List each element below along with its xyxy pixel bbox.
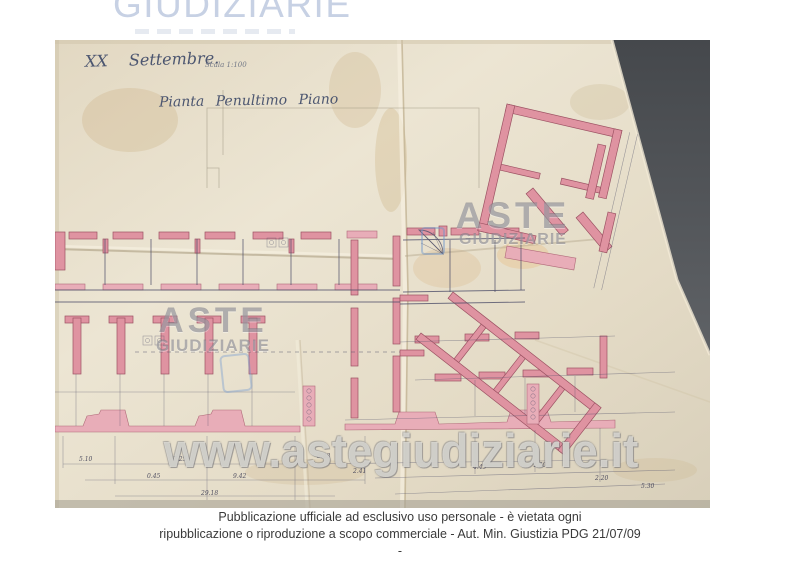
- page: GIUDIZIARIE: [0, 0, 800, 566]
- watermark-url: www.astegiudiziarie.it: [159, 423, 644, 478]
- caption-line-1: Pubblicazione ufficiale ad esclusivo uso…: [0, 509, 800, 526]
- floorplan-photo[interactable]: 5.107.255.480.459.4229.182.414.451.302.2…: [55, 40, 710, 508]
- watermark-giudiziarie-text: GIUDIZIARIE: [447, 231, 579, 249]
- watermark-aste-text: ASTE: [137, 306, 289, 336]
- svg-text:5.30: 5.30: [641, 483, 655, 490]
- plan-title-handwriting: Pianta Penultimo Piano: [159, 91, 338, 110]
- aste-logo-icon: [219, 353, 253, 394]
- svg-text:5.10: 5.10: [79, 456, 93, 463]
- caption-line-2: ripubblicazione o riproduzione a scopo c…: [0, 526, 800, 543]
- legal-caption: Pubblicazione ufficiale ad esclusivo uso…: [0, 509, 800, 560]
- plan-date-handwriting: XX Settembre.: [85, 48, 220, 71]
- watermark-aste-right: ASTE GIUDIZIARIE: [447, 200, 579, 249]
- aste-logo-icon: [421, 227, 445, 255]
- caption-line-3: -: [0, 543, 800, 560]
- watermark-aste-text: ASTE: [447, 200, 579, 231]
- site-logo-text[interactable]: GIUDIZIARIE: [113, 0, 352, 26]
- site-logo-tagline: [135, 29, 295, 34]
- svg-text:29.18: 29.18: [200, 490, 218, 497]
- watermark-giudiziarie-text: GIUDIZIARIE: [137, 336, 289, 356]
- watermark-aste-left: ASTE GIUDIZIARIE: [137, 306, 289, 356]
- plan-scale-handwriting: Scala 1:100: [205, 61, 247, 69]
